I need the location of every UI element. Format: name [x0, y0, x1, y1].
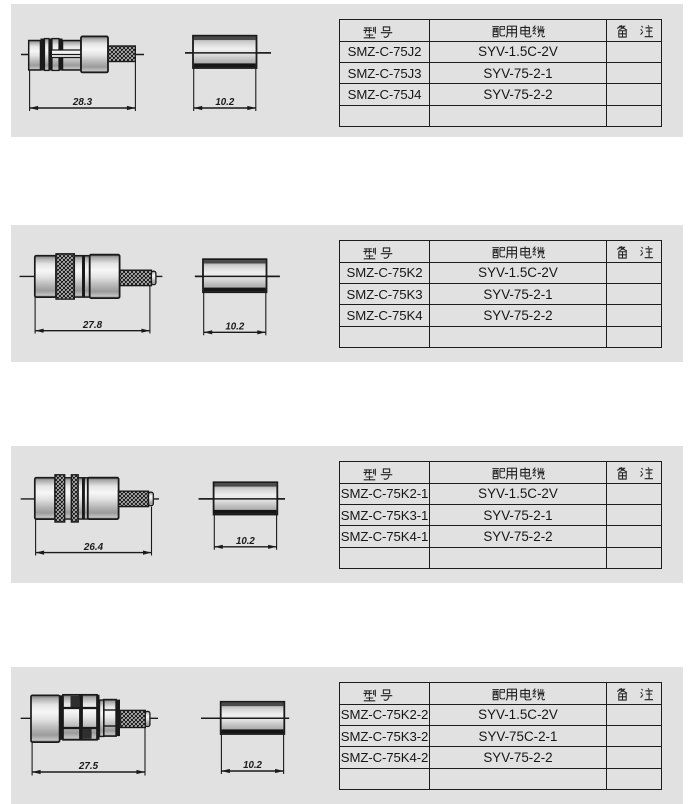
svg-text:26.4: 26.4 [83, 542, 104, 553]
svg-text:10.2: 10.2 [236, 536, 255, 547]
svg-text:10.2: 10.2 [243, 760, 262, 771]
svg-text:27.5: 27.5 [78, 761, 99, 772]
svg-text:28.3: 28.3 [72, 97, 93, 108]
svg-text:27.8: 27.8 [82, 320, 103, 331]
svg-text:10.2: 10.2 [225, 322, 244, 333]
svg-text:10.2: 10.2 [215, 97, 234, 108]
